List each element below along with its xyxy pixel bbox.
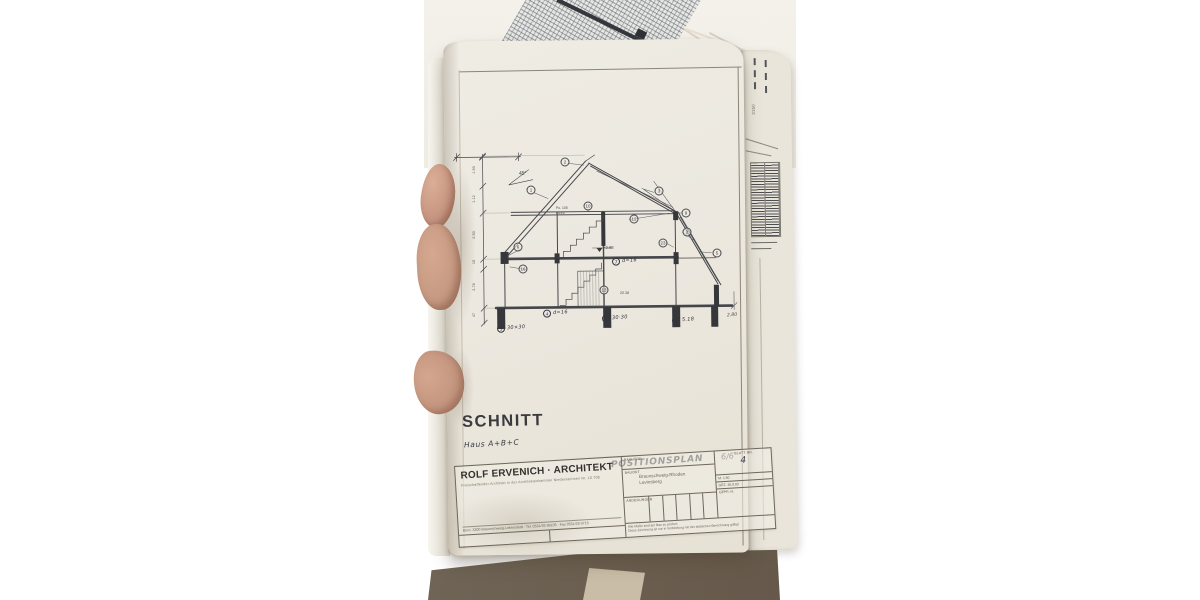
- tick-mark: [754, 70, 756, 77]
- neighbor-hatch-block: [750, 162, 781, 237]
- tick-mark: [765, 73, 767, 80]
- level-marker: [592, 248, 611, 252]
- title-block-project: BAUHERR BAUORT Braunschweig-Rhoden Levin…: [621, 448, 775, 537]
- empty-cell: [662, 495, 677, 521]
- neighbor-line: [751, 248, 771, 249]
- tick-mark: [754, 82, 756, 89]
- neighbor-dim-label: 3150: [751, 95, 756, 115]
- empty-cell: [648, 496, 663, 522]
- drawing-frame: [459, 66, 742, 72]
- section-drawing: [448, 133, 750, 351]
- aenderungen-label: ÄNDERUNGEN: [624, 497, 649, 523]
- empty-cell: [689, 493, 704, 519]
- empty-cell: [675, 494, 690, 520]
- drawing-title: SCHNITT: [462, 411, 544, 432]
- tick-mark: [765, 60, 767, 67]
- page-shadow: [446, 492, 596, 556]
- empty-cell: [702, 493, 717, 519]
- title-block-right-fields: BLATT NR. 4 M. 1:50 GEZ. 30.8.93 GEPR. N…: [714, 448, 775, 517]
- tick-mark: [754, 58, 756, 65]
- dimension-chain: [453, 151, 737, 327]
- table-patch: [583, 568, 645, 600]
- title-block-grid: BAUHERR BAUORT Braunschweig-Rhoden Levin…: [622, 448, 775, 523]
- photo-scene: 3150: [0, 0, 1200, 600]
- roof: [501, 154, 721, 287]
- gepr-cell: GEPR. N.: [717, 486, 775, 517]
- title-block-left-fields: BAUHERR BAUORT Braunschweig-Rhoden Levin…: [622, 452, 718, 523]
- stairs: [557, 215, 604, 307]
- footings: [497, 306, 718, 329]
- neighbor-line: [746, 150, 772, 156]
- neighbor-line: [745, 138, 778, 149]
- tick-mark: [765, 86, 767, 93]
- blatt-nr-value: 4: [715, 454, 771, 467]
- neighbor-line: [751, 242, 777, 243]
- blatt-nr-cell: BLATT NR. 4: [715, 448, 772, 475]
